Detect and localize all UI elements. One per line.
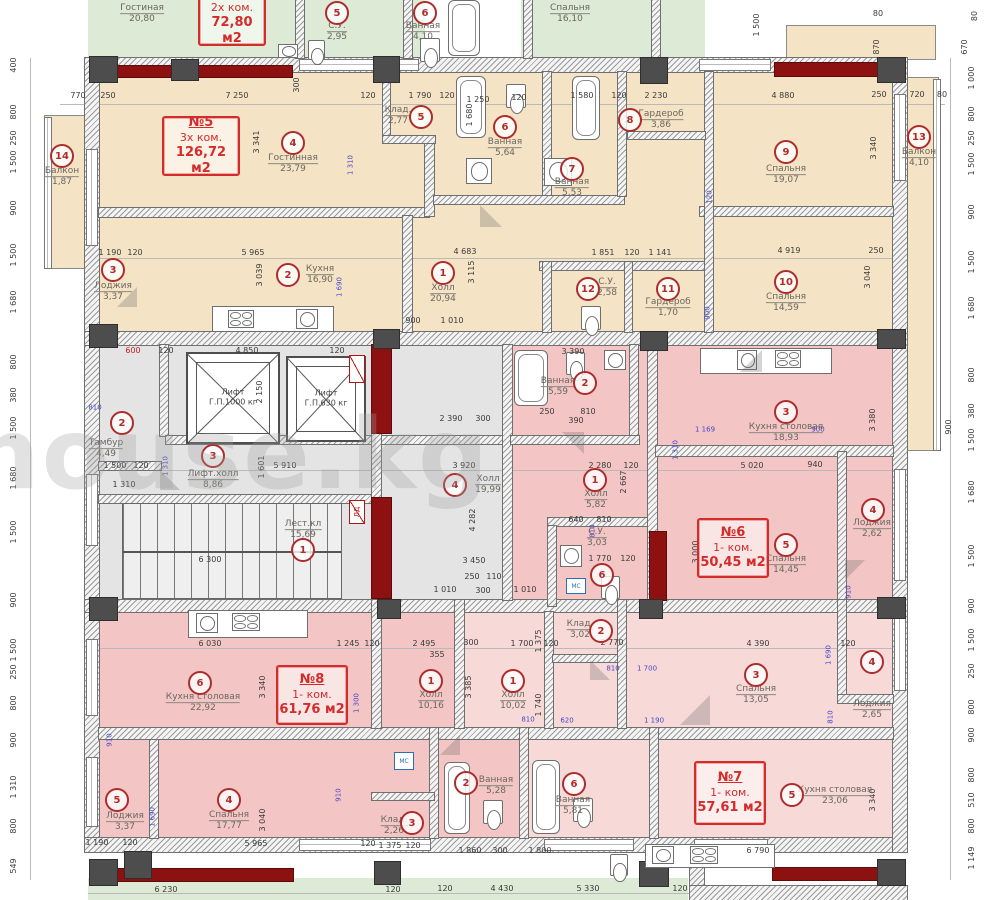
- dimension-text: 250: [868, 247, 883, 255]
- chain-dimension-left: 800: [10, 104, 18, 119]
- dimension-text: 1 375: [535, 630, 543, 653]
- dimension-text: 120: [158, 347, 173, 355]
- apartment-label-line: 126,72 м2: [164, 145, 238, 178]
- room-number-circle: 1: [583, 468, 607, 492]
- fixture-shaft: [349, 355, 365, 383]
- chain-dimension-left: 1 680: [10, 291, 18, 314]
- dimension-text: 1 010: [514, 586, 537, 594]
- apartment-label-line: 3х ком.: [164, 131, 238, 145]
- apartment-label-line: 1- ком.: [696, 786, 764, 800]
- column: [90, 325, 117, 347]
- wall: [652, 0, 660, 58]
- room-number-circle: 10: [774, 270, 798, 294]
- burner: [692, 848, 704, 855]
- dimension-text: 300: [463, 639, 478, 647]
- dimension-text: 1 700: [511, 640, 534, 648]
- wall: [383, 136, 435, 143]
- chain-dimension-left: 900: [10, 592, 18, 607]
- room-area: [787, 26, 935, 59]
- chain-dimension-right: 1 500: [968, 629, 976, 652]
- dimension-text: 1 690: [150, 807, 157, 827]
- dimension-text: 3 340: [259, 676, 267, 699]
- dimension-text: 3 340: [870, 137, 878, 160]
- wall: [545, 612, 553, 728]
- room-area-value: 10,02: [500, 702, 526, 712]
- fixture-sink: [466, 158, 492, 184]
- fixture-tub: [448, 0, 480, 56]
- wall: [553, 655, 623, 662]
- fixture-toilet: [308, 40, 325, 60]
- chain-dimension-right: 1 149: [968, 847, 976, 870]
- dimension-text: 4 850: [236, 347, 259, 355]
- room-number-circle: 2: [276, 263, 300, 287]
- wall: [630, 345, 638, 440]
- room-number-circle: 9: [774, 140, 798, 164]
- dimension-text: 1 770: [589, 555, 612, 563]
- room-area: [45, 116, 88, 268]
- dimension-text: 390: [568, 417, 583, 425]
- burner: [242, 312, 253, 319]
- room-number-circle: 12: [576, 277, 600, 301]
- room-area: [88, 0, 705, 58]
- dimension-text: 120: [385, 886, 400, 894]
- dimension-text: 120: [672, 885, 687, 893]
- room-area-value: 5,59: [541, 388, 575, 398]
- dimension-text: 2 667: [620, 471, 628, 494]
- room-number-circle: 3: [201, 444, 225, 468]
- dimension-text: 1 500: [753, 14, 761, 37]
- room-label: Холл5,82: [584, 489, 607, 511]
- dimension-text: 940: [807, 461, 822, 469]
- room-area-value: 2,62: [853, 530, 891, 540]
- room-area-value: 22,92: [166, 704, 240, 714]
- room-area-value: 3,37: [94, 293, 132, 303]
- dimension-text: 120: [364, 640, 379, 648]
- wall: [403, 216, 412, 332]
- wall: [503, 345, 512, 600]
- dimension-text: 3 385: [465, 676, 473, 699]
- room-label: Холл19,99: [475, 474, 501, 496]
- dimension-text: 4 919: [778, 247, 801, 255]
- bearing-wall-mark: [117, 66, 292, 77]
- room-label: Ванная5,59: [541, 376, 575, 398]
- dimension-text: 1 740: [535, 694, 543, 717]
- dimension-text: 80: [937, 91, 947, 99]
- dimension-text: 1 190: [86, 839, 109, 847]
- room-label: Спальня14,45: [766, 554, 806, 576]
- column: [878, 330, 905, 348]
- burner: [789, 352, 800, 359]
- dimension-text: 670: [961, 39, 969, 54]
- dimension-text: 1 010: [434, 586, 457, 594]
- room-number-circle: 13: [907, 125, 931, 149]
- window: [895, 618, 905, 690]
- fixture-wm: МС: [394, 752, 414, 770]
- room-area-value: 2,65: [853, 711, 891, 721]
- room-name: Тамбур: [89, 438, 123, 449]
- dimension-text: 1 190: [644, 718, 664, 725]
- dimension-text: 250: [871, 91, 886, 99]
- dimension-text: 5 330: [577, 885, 600, 893]
- room-area-value: 17,77: [209, 822, 249, 832]
- dimension-text: 6 030: [199, 640, 222, 648]
- room-name: Лифт.холл: [188, 469, 239, 480]
- dimension-line: [950, 58, 951, 880]
- dimension-text: 3 040: [864, 266, 872, 289]
- dimension-text: 1 680: [466, 104, 474, 127]
- elevator-label: Лифт Г.П.1000 кг: [188, 388, 278, 409]
- chain-dimension-left: 800: [10, 695, 18, 710]
- wall: [99, 495, 381, 503]
- window: [87, 475, 97, 545]
- dimension-text: 120: [122, 839, 137, 847]
- column: [878, 860, 905, 885]
- door-swing: [480, 205, 502, 227]
- chain-dimension-right: 900: [968, 598, 976, 613]
- room-label: Балкон4,10: [902, 147, 936, 169]
- floor-plan-canvas: house.kg Лифт Г.П.1000 кгЛифт Г.П.630 кг…: [0, 0, 987, 900]
- room-name: Лоджия: [94, 281, 132, 292]
- room-number-circle: 3: [400, 811, 424, 835]
- column: [375, 862, 400, 884]
- dimension-text: 810: [580, 408, 595, 416]
- column: [878, 58, 905, 82]
- room-area-value: 19,07: [766, 176, 806, 186]
- door-swing: [740, 350, 762, 372]
- room-number-circle: 1: [431, 261, 455, 285]
- chain-dimension-right: 1 000: [968, 67, 976, 90]
- room-label: Балкон1,87: [45, 166, 79, 188]
- dimension-text: 4 390: [747, 640, 770, 648]
- dimension-text: 1 690: [337, 277, 344, 297]
- bearing-wall-mark: [372, 345, 391, 433]
- room-number-circle: 5: [409, 105, 433, 129]
- chain-dimension-left: 900: [10, 732, 18, 747]
- chain-dimension-right: 800: [968, 367, 976, 382]
- room-name: Ванная: [556, 795, 590, 806]
- dimension-text: 810: [606, 666, 619, 673]
- dimension-text: 1 310: [348, 155, 355, 175]
- door-swing: [680, 695, 710, 725]
- room-area-value: 1,70: [645, 309, 690, 319]
- dimension-text: 1 800: [529, 847, 552, 855]
- fixture-toilet: [581, 306, 601, 330]
- dimension-text: 900: [705, 306, 712, 319]
- room-number-circle: 6: [493, 115, 517, 139]
- window: [895, 470, 905, 580]
- wall: [425, 140, 434, 216]
- column: [641, 332, 667, 350]
- dimension-text: 4 683: [454, 248, 477, 256]
- room-number-circle: 6: [188, 671, 212, 695]
- room-area-value: 4,49: [89, 450, 123, 460]
- fixture-stove: [232, 613, 260, 631]
- dimension-text: 1 245: [337, 640, 360, 648]
- room-number-circle: 4: [860, 650, 884, 674]
- dimension-text: 910: [846, 585, 853, 598]
- wall: [372, 793, 434, 800]
- fixture-toilet: [610, 854, 628, 876]
- door-swing: [845, 560, 865, 580]
- wall: [656, 446, 893, 456]
- wall: [838, 600, 846, 700]
- dimension-text: 2 495: [413, 640, 436, 648]
- fixture-sink: [196, 613, 218, 633]
- room-label: С.У.3,03: [587, 527, 607, 549]
- dimension-text: 120: [329, 347, 344, 355]
- elevator-shaft: Лифт Г.П.1000 кг: [186, 352, 280, 444]
- chain-dimension-right: 1 500: [968, 429, 976, 452]
- wall: [625, 262, 632, 332]
- room-name: Ванная: [541, 376, 575, 387]
- room-name: Клад.: [385, 105, 412, 116]
- column: [640, 600, 662, 618]
- chain-dimension-right: 1 500: [968, 153, 976, 176]
- burner: [247, 615, 259, 622]
- dimension-text: 300: [475, 587, 490, 595]
- room-number-circle: 5: [105, 788, 129, 812]
- chain-dimension-right: 800: [968, 106, 976, 121]
- fixture-counter: [700, 348, 832, 374]
- fixture-toilet: [483, 800, 503, 824]
- burner: [705, 848, 717, 855]
- dimension-text: 1 700: [637, 666, 657, 673]
- column: [90, 860, 117, 885]
- room-area-value: 10,16: [418, 702, 444, 712]
- room-number-circle: 4: [281, 131, 305, 155]
- window: [45, 118, 51, 268]
- dimension-text: 1 300: [354, 693, 361, 713]
- dimension-text: 1 310: [113, 481, 136, 489]
- room-area-value: 3,86: [638, 121, 683, 131]
- apartment-label-line: №7: [696, 770, 764, 786]
- room-area-value: 18,93: [749, 434, 823, 444]
- dimension-text: 900: [945, 419, 953, 434]
- chain-dimension-right: 1 500: [968, 545, 976, 568]
- room-number-circle: 6: [590, 563, 614, 587]
- room-area-value: 4,10: [902, 159, 936, 169]
- dimension-text: 3 920: [453, 462, 476, 470]
- apartment-label-line: №6: [699, 525, 767, 541]
- apartment-label-line: 1- ком.: [699, 541, 767, 555]
- dimension-text: 6 230: [155, 886, 178, 894]
- burner: [247, 623, 259, 630]
- bearing-wall-mark: [775, 63, 878, 76]
- room-label: Спальня16,10: [550, 3, 590, 25]
- room-name: Лест.кл: [285, 519, 322, 530]
- dimension-text: 810: [521, 717, 534, 724]
- room-label: Лоджия3,37: [106, 811, 144, 833]
- wall: [434, 196, 624, 204]
- dimension-line: [30, 58, 31, 880]
- apartment-label-box: №53х ком.126,72 м2: [162, 116, 240, 176]
- dimension-text: 640: [568, 516, 583, 524]
- room-name: С.У.: [587, 527, 607, 538]
- dimension-text: 1 790: [409, 92, 432, 100]
- room-number-circle: 8: [618, 108, 642, 132]
- dimension-text: 810: [88, 405, 101, 412]
- room-label: Кухня16,90: [306, 264, 334, 286]
- room-label: Кухня столовая23,06: [798, 785, 872, 807]
- wall: [628, 132, 705, 139]
- dimension-text: 120: [840, 640, 855, 648]
- dimension-text: 6 300: [199, 556, 222, 564]
- fixture-sink: [652, 846, 674, 864]
- room-label: Холл10,16: [418, 690, 444, 712]
- column: [374, 57, 399, 82]
- chain-dimension-right: 510: [968, 792, 976, 807]
- chain-dimension-left: 800: [10, 818, 18, 833]
- dimension-text: 5 020: [741, 462, 764, 470]
- room-name: Спальня: [766, 164, 806, 175]
- dimension-text: 300: [475, 415, 490, 423]
- room-name: Спальня: [550, 3, 590, 14]
- apartment-label-box: №61- ком.50,45 м2: [697, 518, 769, 578]
- dimension-text: 3 390: [562, 348, 585, 356]
- dimension-text: 120: [360, 92, 375, 100]
- dimension-text: 110: [486, 573, 501, 581]
- dimension-text: 5 965: [245, 840, 268, 848]
- dimension-text: 2 390: [440, 415, 463, 423]
- dimension-text: 620: [560, 718, 573, 725]
- window: [87, 150, 97, 245]
- burner: [789, 360, 800, 367]
- chain-dimension-left: 1 680: [10, 467, 18, 490]
- dimension-text: 4 282: [469, 509, 477, 532]
- dimension-text: 1 601: [258, 456, 266, 479]
- room-area-value: 23,79: [268, 165, 318, 175]
- dimension-text: 1 190: [99, 249, 122, 257]
- chain-dimension-right: 1 680: [968, 481, 976, 504]
- room-label: Гардероб3,86: [638, 109, 683, 131]
- dimension-text: 4 880: [772, 92, 795, 100]
- dimension-text: 1 860: [459, 847, 482, 855]
- apartment-label-box: №81- ком.61,76 м2: [276, 665, 348, 725]
- dimension-text: 910: [336, 788, 343, 801]
- room-label: Лоджия2,65: [853, 699, 891, 721]
- room-number-circle: 5: [325, 1, 349, 25]
- dimension-line: [60, 104, 945, 105]
- dimension-text: 5 965: [242, 249, 265, 257]
- room-number-circle: 2: [573, 371, 597, 395]
- wall: [520, 728, 528, 838]
- apartment-label-line: 61,76 м2: [278, 702, 346, 718]
- dimension-text: 120: [437, 885, 452, 893]
- fixture-stove: [690, 846, 718, 864]
- room-number-circle: 5: [774, 533, 798, 557]
- wall: [548, 526, 556, 606]
- wall: [455, 600, 464, 728]
- room-label: Спальня19,07: [766, 164, 806, 186]
- room-name: Холл: [475, 474, 501, 485]
- dimension-text: 300: [293, 77, 301, 92]
- room-area-value: 2,77: [385, 117, 412, 127]
- room-label: Ванная5,28: [479, 775, 513, 797]
- chain-dimension-left: 1 310: [10, 776, 18, 799]
- fixture-sink: [278, 44, 298, 58]
- column: [90, 598, 117, 620]
- room-name: Кухня столовая: [798, 785, 872, 796]
- room-number-circle: 6: [413, 1, 437, 25]
- door-swing: [562, 432, 584, 454]
- apartment-label-line: 72,80 м2: [200, 15, 264, 48]
- dimension-text: 120: [543, 640, 558, 648]
- dimension-text: 120: [439, 92, 454, 100]
- chain-dimension-right: 900: [968, 204, 976, 219]
- room-area-value: 13,05: [736, 696, 776, 706]
- room-area-value: 5,81: [556, 807, 590, 817]
- room-label: Ванная5,81: [556, 795, 590, 817]
- room-label: Холл10,02: [500, 690, 526, 712]
- chain-dimension-left: 1 500: [10, 151, 18, 174]
- room-name: Гостиная: [120, 3, 164, 14]
- room-name: Кухня: [306, 264, 334, 275]
- dimension-text: 2 230: [645, 92, 668, 100]
- dimension-text: 300: [492, 847, 507, 855]
- room-label: Ванная5,64: [488, 137, 522, 159]
- window: [87, 758, 97, 826]
- room-number-circle: 2: [454, 771, 478, 795]
- dimension-text: 120: [707, 190, 714, 203]
- column: [125, 852, 151, 878]
- chain-dimension-left: 400: [10, 57, 18, 72]
- room-number-circle: 4: [861, 498, 885, 522]
- chain-dimension-left: 250: [10, 130, 18, 145]
- fixture-sink: [604, 350, 626, 370]
- chain-dimension-left: 549: [10, 858, 18, 873]
- dimension-text: 5 910: [274, 462, 297, 470]
- room-label: Спальня17,77: [209, 810, 249, 832]
- dimension-text: 1 310: [163, 456, 170, 476]
- apartment-label-line: 2х ком.: [200, 1, 264, 15]
- dimension-text: 120: [127, 249, 142, 257]
- chain-dimension-left: 800: [10, 354, 18, 369]
- chain-dimension-right: 1 500: [968, 251, 976, 274]
- fixture-wm: МС: [566, 578, 586, 594]
- burner: [230, 320, 241, 327]
- dimension-line: [99, 648, 894, 649]
- column: [878, 598, 905, 618]
- room-number-circle: 1: [291, 538, 315, 562]
- wall: [524, 0, 532, 58]
- dimension-text: 120: [405, 842, 420, 850]
- room-name: Ванная: [479, 775, 513, 786]
- chain-dimension-right: 1 680: [968, 297, 976, 320]
- chain-dimension-left: 380: [10, 387, 18, 402]
- window: [87, 640, 97, 715]
- chain-dimension-left: 1 500: [10, 639, 18, 662]
- dimension-text: 250: [539, 408, 554, 416]
- room-area-value: 3,37: [106, 823, 144, 833]
- dimension-text: 120: [133, 462, 148, 470]
- dimension-text: 120: [360, 840, 375, 848]
- apartment-label-line: №5: [164, 115, 238, 131]
- wall: [160, 345, 168, 436]
- dimension-text: 6 790: [747, 847, 770, 855]
- chain-dimension-left: 900: [10, 200, 18, 215]
- room-area-value: 4,10: [406, 33, 440, 43]
- dimension-text: 80: [873, 10, 883, 18]
- dimension-text: 870: [873, 39, 881, 54]
- burner: [692, 856, 704, 863]
- dimension-text: 810: [828, 710, 835, 723]
- apartment-label-line: №8: [278, 672, 346, 688]
- dimension-text: 120: [511, 94, 526, 102]
- dimension-text: 1 690: [826, 645, 833, 665]
- room-number-circle: 6: [562, 772, 586, 796]
- room-name: Гардероб: [638, 109, 683, 120]
- dimension-text: 1 141: [649, 249, 672, 257]
